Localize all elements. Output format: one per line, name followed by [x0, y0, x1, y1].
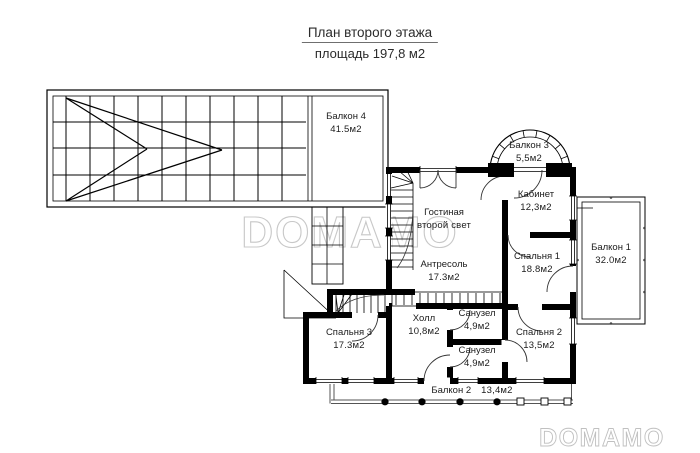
floor-plan-page: DOMAMO	[0, 0, 700, 453]
stair-winder-fan	[391, 171, 413, 189]
room-label-balkon2: Балкон 2 13,4м2	[431, 384, 512, 397]
room-label-holl: Холл 10,8м2	[408, 312, 440, 338]
terrace-balkon4	[47, 90, 388, 207]
watermark-corner: DOMAMO	[539, 424, 665, 452]
terrace-roof-diagonals	[66, 98, 222, 201]
room-label-kabinet: Кабинет 12,3м2	[518, 188, 554, 214]
room-label-gostinaya: Гостиная второй свет	[417, 206, 471, 232]
room-label-spalnya2: Спальня 2 13,5м2	[516, 326, 562, 352]
room-label-balkon1: Балкон 1 32.0м2	[591, 241, 631, 267]
room-label-spalnya1: Спальня 1 18.8м2	[514, 250, 560, 276]
room-label-sanuzel2: Санузел 4,9м2	[458, 344, 495, 370]
terrace-grid-horizontals	[53, 122, 306, 175]
plan-title-line1: План второго этажа	[302, 25, 438, 43]
room-label-antresol: Антресоль 17.3м2	[421, 258, 468, 284]
room-label-balkon3: Балкон 3 5,5м2	[509, 139, 549, 165]
room-label-spalnya3: Спальня 3 17.3м2	[326, 326, 372, 352]
plan-title: План второго этажа площадь 197,8 м2	[302, 24, 438, 61]
room-label-sanuzel1: Санузел 4,9м2	[458, 307, 495, 333]
room-label-balkon4: Балкон 4 41.5м2	[326, 110, 366, 136]
floor-plan-drawing: DOMAMO	[0, 0, 700, 453]
plan-title-line2: площадь 197,8 м2	[302, 46, 438, 61]
